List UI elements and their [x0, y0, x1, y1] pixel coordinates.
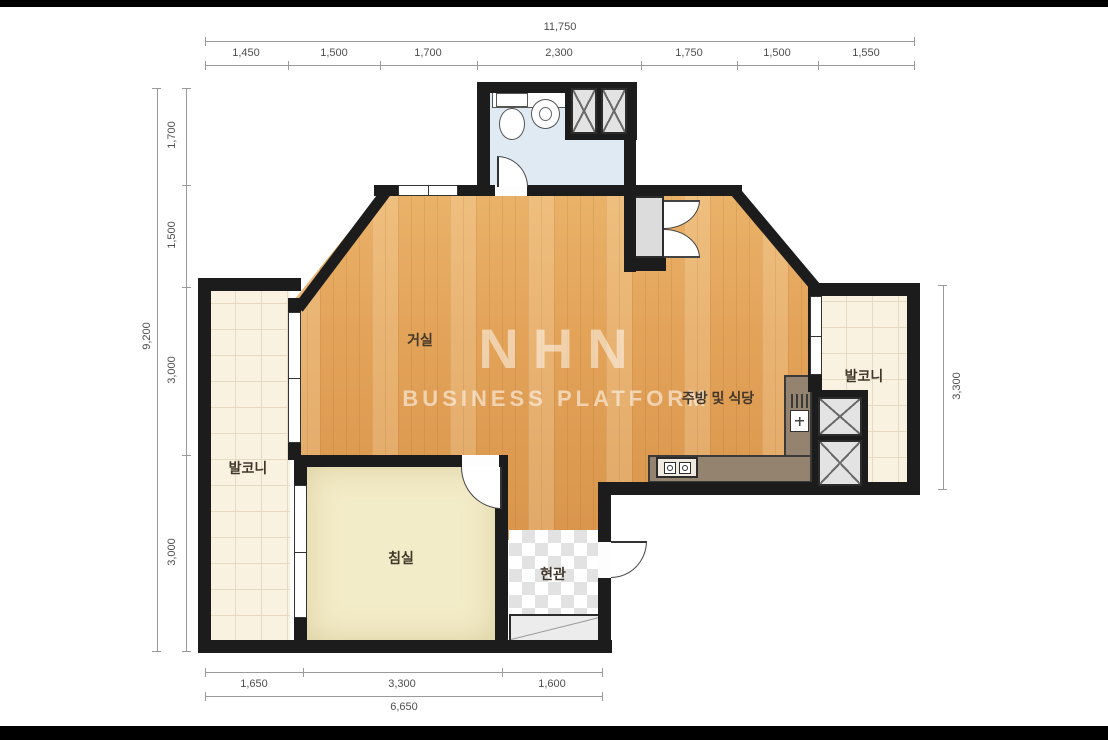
kitchen-balcony-window	[810, 296, 822, 375]
dim-line	[157, 88, 158, 652]
closet-cabinet	[632, 196, 664, 258]
wall-closet-stub	[624, 258, 666, 271]
bedroom-label: 침실	[331, 548, 471, 568]
dim-line	[205, 41, 915, 42]
dim-right-total: 3,300	[951, 356, 963, 416]
balcony-right-label: 발코니	[794, 366, 934, 386]
dim-top-seg: 1,700	[398, 47, 458, 59]
dim-bottom-seg: 3,300	[372, 678, 432, 690]
bedroom-balcony-window	[294, 485, 307, 618]
wall-balcony-left-top	[198, 278, 301, 291]
dim-top-seg: 1,500	[747, 47, 807, 59]
toilet-tank-icon	[496, 93, 528, 107]
wall-bottom	[198, 640, 612, 653]
wall-bathroom-left	[477, 82, 490, 196]
wall-bathroom-bottom	[527, 185, 636, 196]
letterbox-bottom	[0, 726, 1108, 740]
dim-bottom-total: 6,650	[364, 701, 444, 713]
dim-top-seg: 2,300	[529, 47, 589, 59]
burner-icon	[664, 462, 676, 474]
floorplan-canvas: NHN BUSINESS PLATFORM	[0, 0, 1108, 740]
dim-top-seg: 1,750	[659, 47, 719, 59]
wall-kitchen-bottom	[598, 482, 920, 495]
duct-shaft-icon	[818, 397, 862, 436]
dim-line	[943, 285, 944, 490]
letterbox-top	[0, 0, 1108, 7]
dim-line	[205, 696, 603, 697]
duct-shaft-icon	[571, 88, 597, 134]
duct-shaft-icon	[818, 440, 862, 486]
toilet-bowl-icon	[499, 108, 525, 140]
stove-icon	[656, 457, 698, 478]
dim-top-seg: 1,550	[836, 47, 896, 59]
dim-bottom-seg: 1,600	[522, 678, 582, 690]
dim-bottom-seg: 1,650	[224, 678, 284, 690]
kitchen-dining-label: 주방 및 식당	[638, 388, 798, 408]
bedroom-door-threshold	[462, 455, 499, 467]
dim-top-total: 11,750	[510, 21, 610, 33]
dim-left-seg: 3,000	[166, 340, 178, 400]
dim-top-seg: 1,500	[304, 47, 364, 59]
dim-left-seg: 3,000	[166, 522, 178, 582]
burner-icon	[679, 462, 691, 474]
dim-left-total: 9,200	[141, 306, 153, 366]
living-room-label: 거실	[350, 330, 490, 350]
living-balcony-window	[288, 312, 301, 443]
dim-line	[205, 672, 603, 673]
dim-left-seg: 1,500	[166, 205, 178, 265]
wall-balcony-right-top	[818, 283, 920, 296]
dim-left-seg: 1,700	[166, 105, 178, 165]
washbasin-drain-icon	[539, 107, 552, 121]
wall-balcony-right-outer	[907, 283, 920, 495]
duct-shaft-icon	[601, 88, 627, 134]
kitchen-sink-icon	[790, 410, 809, 432]
wall-entrance-right-lower	[598, 578, 611, 645]
entrance-label: 현관	[483, 564, 623, 584]
balcony-left-label: 발코니	[178, 458, 318, 478]
dim-line	[186, 88, 187, 652]
living-top-window	[398, 185, 458, 196]
dim-top-seg: 1,450	[216, 47, 276, 59]
dim-line	[205, 65, 915, 66]
wall-bedroom-top	[294, 455, 462, 467]
wall-living-top-right	[627, 185, 742, 196]
